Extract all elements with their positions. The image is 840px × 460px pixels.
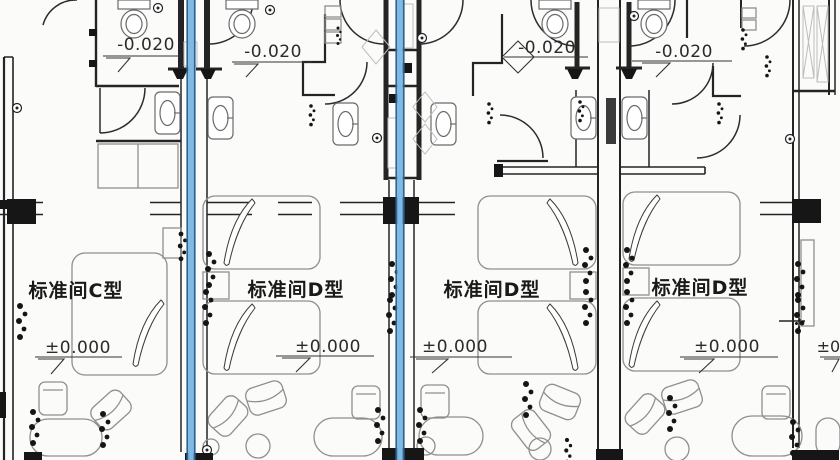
door-sill <box>567 69 583 79</box>
side-table <box>665 437 689 460</box>
floor-drain-icon <box>373 134 382 143</box>
bed <box>203 196 320 269</box>
side-table <box>246 434 270 458</box>
door-sill <box>621 69 637 79</box>
bed <box>478 301 596 374</box>
sink-icon <box>333 103 358 145</box>
bed-cover-swoosh <box>547 199 578 265</box>
door-arc <box>672 63 713 104</box>
floor-drain-icon <box>266 6 275 15</box>
floor-elevation-label-partial: ±0.0 <box>817 337 840 356</box>
closet <box>98 144 178 188</box>
desk-chair <box>762 386 790 419</box>
sink-icon <box>622 97 647 139</box>
toilet-icon <box>638 0 670 38</box>
floor-drain-icon <box>13 104 22 113</box>
bed-cover-swoosh <box>629 301 660 367</box>
floor-elevation-label: ±0.000 <box>694 337 760 357</box>
desk-chair <box>421 385 449 418</box>
floor-elevation-label: ±0.000 <box>422 337 488 357</box>
floor-drain-icon <box>154 4 163 13</box>
room-type-label: 标准间C型 <box>29 279 124 302</box>
desk-chair <box>352 386 380 419</box>
bathroom-elevation-label: -0.020 <box>518 38 576 58</box>
door-arc <box>744 0 790 46</box>
bathroom-elevation-label: -0.020 <box>244 42 302 62</box>
bed-cover-swoosh <box>629 195 660 261</box>
floor-drain-icon <box>630 12 639 21</box>
bathroom-elevation-label: -0.020 <box>655 42 713 62</box>
lounge-chair <box>622 391 668 438</box>
floor-drain-icon <box>418 34 427 43</box>
door-arc <box>340 0 384 44</box>
elevation-markers <box>35 41 840 374</box>
sink-icon <box>208 97 233 139</box>
furniture <box>30 4 840 460</box>
door-sill <box>172 69 188 79</box>
door-arc <box>100 88 145 133</box>
highlighted-grid-line-right <box>395 0 404 460</box>
floor-plan-image: -0.020 -0.020 -0.020 -0.020 ±0.000 ±0.00… <box>0 0 840 460</box>
room-type-label: 标准间D型 <box>652 276 749 299</box>
floor-plan-svg: -0.020 -0.020 -0.020 -0.020 ±0.000 ±0.00… <box>0 0 840 460</box>
door-arc <box>500 115 543 158</box>
floor-elevation-label: ±0.000 <box>295 337 361 357</box>
lounge-chair <box>205 393 251 440</box>
bed-cover-swoosh <box>547 304 578 370</box>
toilet-icon <box>226 0 258 38</box>
lounge-chair <box>88 387 135 433</box>
chaise-lounge <box>314 418 382 456</box>
labels: -0.020 -0.020 -0.020 -0.020 ±0.000 ±0.00… <box>29 35 840 358</box>
floor-drain-icon <box>786 135 795 144</box>
toilet-icon <box>539 0 571 38</box>
room-type-label: 标准间D型 <box>248 278 345 301</box>
bed-cover-swoosh <box>133 300 164 366</box>
chaise-lounge <box>419 417 483 455</box>
walls <box>0 0 835 460</box>
bathroom-elevation-label: -0.020 <box>117 35 175 55</box>
sink-icon <box>155 92 180 134</box>
bed-cover-swoosh <box>224 304 255 370</box>
desk-chair <box>39 382 67 415</box>
bed-cover-swoosh <box>224 199 255 265</box>
lounge-chair <box>537 382 583 422</box>
floor-elevation-label: ±0.000 <box>45 338 111 358</box>
nightstand <box>163 228 181 258</box>
lounge-chair <box>660 378 705 416</box>
room-type-label: 标准间D型 <box>444 278 541 301</box>
sink-icon <box>571 97 596 139</box>
toilet-icon <box>118 0 150 38</box>
highlighted-grid-line-left <box>186 0 195 460</box>
lounge-chair <box>244 379 289 417</box>
electrical-symbols <box>16 27 805 460</box>
nightstand <box>570 272 596 299</box>
chaise-lounge <box>30 419 102 456</box>
door-arc <box>325 62 367 104</box>
lounge-chair <box>508 406 553 453</box>
door-sill <box>200 69 216 79</box>
bed <box>478 196 596 269</box>
side-table <box>529 438 551 460</box>
door-arc <box>43 0 77 25</box>
